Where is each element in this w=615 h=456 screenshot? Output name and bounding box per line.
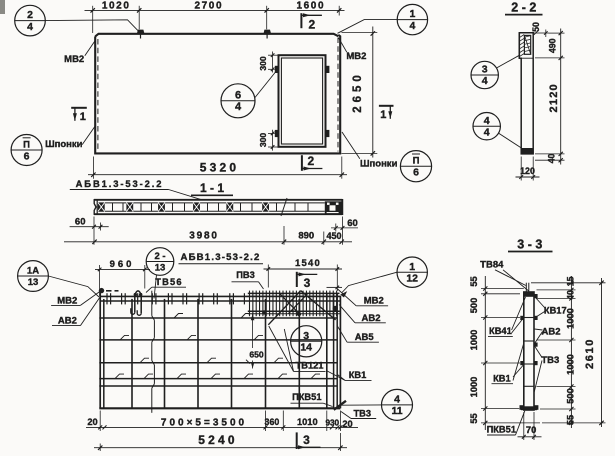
svg-text:55: 55 [469,413,479,423]
svg-text:1600: 1600 [296,1,325,12]
svg-text:2650: 2650 [352,71,364,113]
svg-text:АБВ1.3-53-2.2: АБВ1.3-53-2.2 [76,178,164,189]
svg-text:70: 70 [526,425,536,435]
svg-text:1010: 1010 [297,417,318,427]
svg-text:1000: 1000 [566,308,576,329]
svg-text:2: 2 [27,9,33,21]
svg-text:ПКВ51: ПКВ51 [292,392,321,402]
svg-text:МВ2: МВ2 [364,296,384,307]
svg-text:МВ2: МВ2 [346,51,366,62]
svg-text:3: 3 [304,276,311,290]
svg-text:40: 40 [566,290,576,300]
svg-text:П: П [23,139,30,150]
svg-text:13: 13 [28,277,39,288]
svg-text:5240: 5240 [198,433,238,447]
svg-text:1000: 1000 [469,330,479,351]
svg-text:12: 12 [406,272,418,284]
svg-text:1А: 1А [27,266,39,277]
svg-text:2: 2 [307,154,314,168]
svg-text:КВ17: КВ17 [544,306,567,316]
svg-text:450: 450 [326,231,341,241]
svg-text:1: 1 [409,261,415,273]
svg-text:3980: 3980 [189,230,218,241]
svg-text:ТВ3: ТВ3 [354,408,372,418]
svg-text:МВ2: МВ2 [57,296,77,307]
svg-text:АБВ1.3-53-2.2: АБВ1.3-53-2.2 [180,252,260,263]
svg-text:11: 11 [391,405,402,417]
svg-text:6: 6 [235,89,241,101]
svg-text:ТВ84: ТВ84 [480,259,504,270]
svg-text:60: 60 [347,218,358,229]
svg-text:1540: 1540 [295,258,321,269]
svg-text:1: 1 [80,111,86,123]
svg-text:2: 2 [308,18,315,32]
svg-text:960: 960 [110,259,135,270]
svg-text:500: 500 [469,298,479,314]
svg-text:4: 4 [27,21,33,33]
svg-text:930: 930 [325,418,339,427]
svg-text:2700: 2700 [194,1,223,12]
svg-text:3: 3 [303,433,310,447]
svg-text:55: 55 [566,415,576,425]
svg-text:15: 15 [566,276,576,286]
svg-text:40: 40 [547,154,557,164]
svg-text:2 - 2: 2 - 2 [511,1,536,15]
svg-text:300: 300 [258,56,268,71]
svg-text:1000: 1000 [469,377,479,398]
svg-text:КВ41: КВ41 [489,326,512,336]
svg-text:4: 4 [235,101,242,113]
svg-text:АВ2: АВ2 [361,313,380,324]
svg-text:1020: 1020 [102,1,131,12]
svg-text:КВ1: КВ1 [493,373,511,383]
svg-text:500: 500 [566,388,576,404]
svg-text:АВ2: АВ2 [58,315,77,326]
svg-text:3: 3 [482,64,488,76]
svg-text:14: 14 [300,342,312,354]
svg-text:ПВ3: ПВ3 [236,270,255,280]
svg-text:6: 6 [413,167,419,179]
svg-text:50: 50 [531,22,541,32]
svg-text:МВ2: МВ2 [64,54,84,65]
svg-text:60: 60 [75,217,86,228]
svg-text:Шпонки: Шпонки [360,159,398,170]
svg-text:4: 4 [484,126,490,138]
svg-text:ТВ3: ТВ3 [541,355,559,366]
svg-text:АВ2: АВ2 [541,326,560,337]
svg-text:П: П [413,156,420,167]
svg-text:700×5=3500: 700×5=3500 [161,418,247,429]
svg-text:1: 1 [409,8,415,20]
svg-text:20: 20 [87,417,97,427]
svg-text:890: 890 [298,230,314,241]
svg-text:490: 490 [548,38,558,53]
svg-text:ТВ56: ТВ56 [155,277,183,287]
svg-text:6: 6 [24,151,30,163]
svg-text:3 - 3: 3 - 3 [517,237,542,251]
svg-text:300: 300 [258,133,268,148]
svg-text:1 - 1: 1 - 1 [200,181,224,195]
svg-text:650: 650 [249,350,264,360]
svg-text:2 -: 2 - [154,251,165,262]
svg-text:120: 120 [520,166,535,176]
svg-text:20: 20 [342,419,352,429]
svg-text:1: 1 [380,109,386,121]
svg-text:13: 13 [155,263,166,274]
svg-text:4: 4 [484,115,490,127]
svg-text:ТВ121: ТВ121 [296,361,324,371]
svg-text:4: 4 [409,20,415,32]
svg-text:55: 55 [469,276,479,286]
svg-text:4: 4 [394,394,400,406]
svg-text:5320: 5320 [200,160,240,174]
svg-text:4: 4 [482,75,488,87]
svg-text:2610: 2610 [584,338,596,369]
svg-text:360: 360 [265,417,280,427]
svg-text:2120: 2120 [548,83,560,112]
svg-text:3: 3 [303,330,309,342]
svg-text:ПКВ51: ПКВ51 [487,425,516,435]
svg-text:КВ1: КВ1 [349,370,367,380]
svg-text:1000: 1000 [566,354,576,375]
svg-text:Шпонки: Шпонки [45,139,83,150]
svg-text:АВ5: АВ5 [355,332,375,343]
